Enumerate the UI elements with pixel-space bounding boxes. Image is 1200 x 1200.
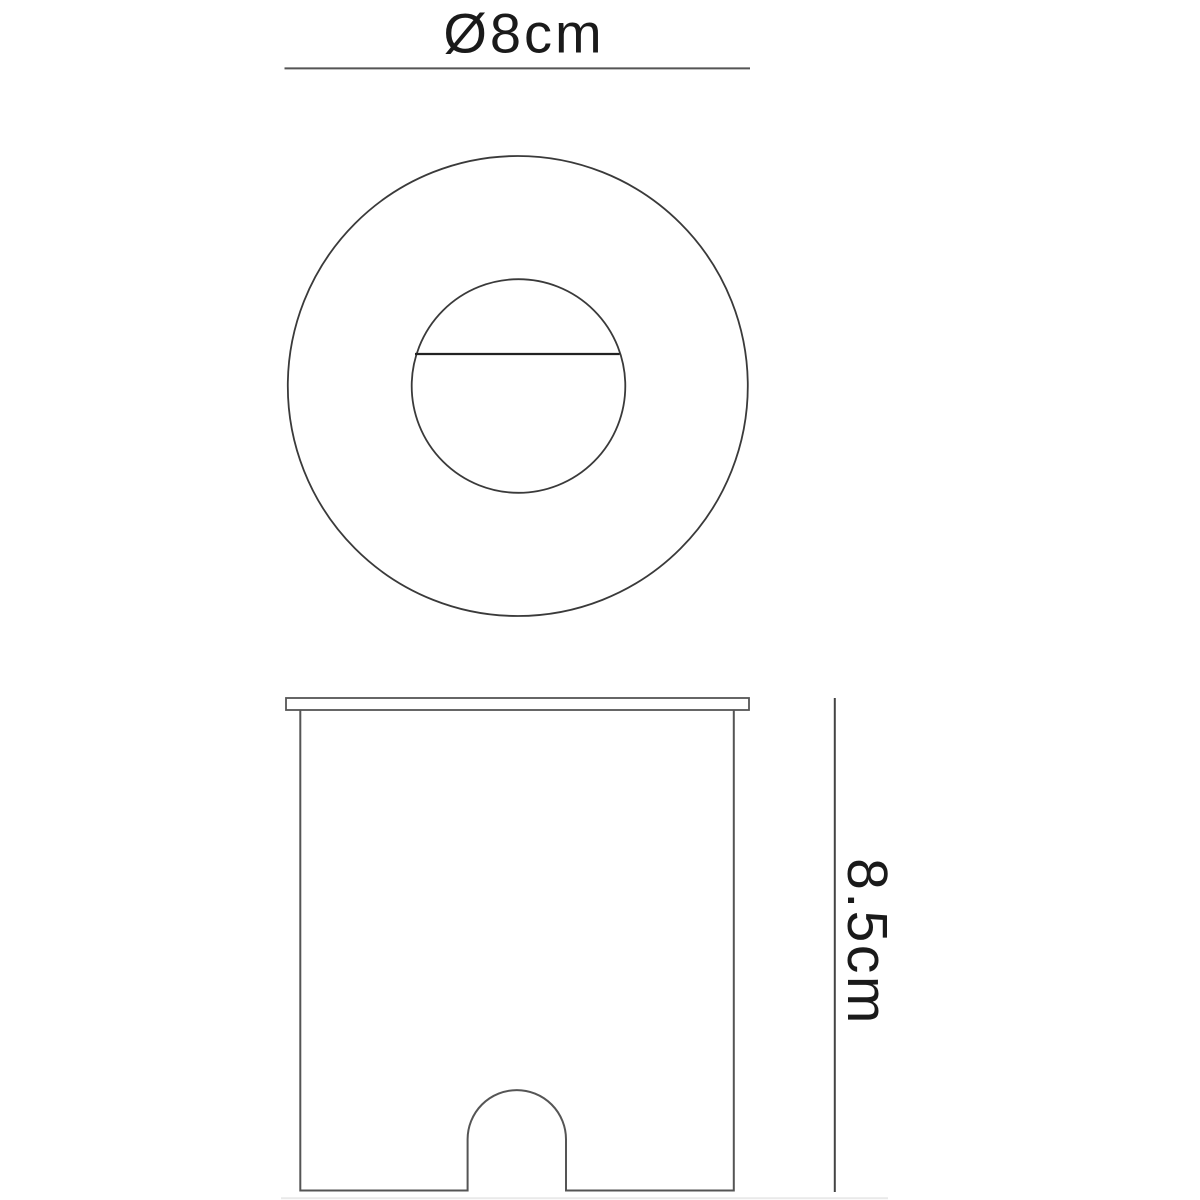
svg-text:8.5cm: 8.5cm xyxy=(835,858,899,1026)
svg-text:Ø8cm: Ø8cm xyxy=(443,2,604,65)
